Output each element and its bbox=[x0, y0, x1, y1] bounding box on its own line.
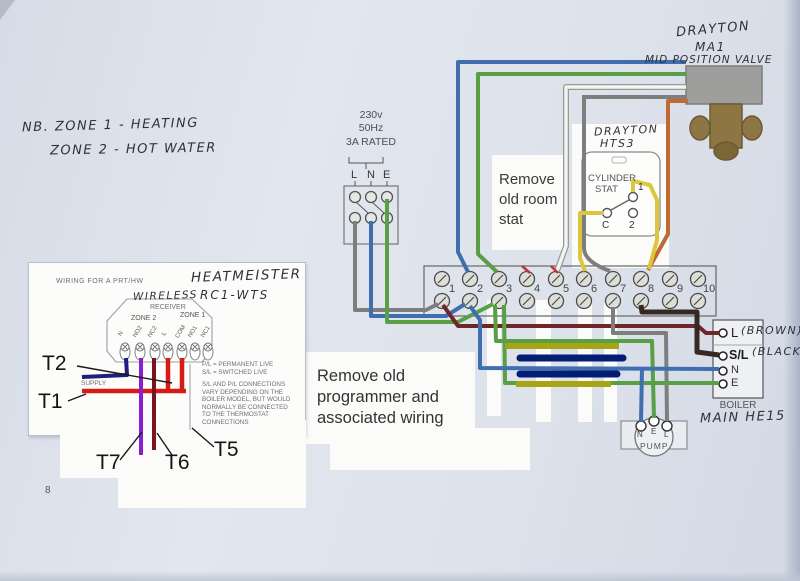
valve-port-left bbox=[690, 116, 710, 140]
boiler-terminal-l bbox=[719, 329, 727, 337]
inset-receiver-label: RECEIVER bbox=[150, 304, 186, 311]
pump-label-l: L bbox=[664, 430, 668, 439]
supply-voltage: 230v bbox=[344, 109, 398, 121]
programmer-note-line: associated wiring bbox=[317, 408, 444, 429]
supply-rating: 3A RATED bbox=[336, 136, 406, 148]
supply-terminal-n: N bbox=[367, 169, 375, 181]
pump-caption: PUMP bbox=[640, 441, 669, 451]
tag-t1: T1 bbox=[38, 390, 63, 414]
inset-zone2: ZONE 2 bbox=[131, 315, 156, 322]
boiler-label-l: L bbox=[731, 325, 738, 340]
boiler-terminal-n bbox=[719, 367, 727, 375]
leader-t7 bbox=[120, 432, 142, 460]
inset-note-line: CONNECTIONS bbox=[202, 419, 290, 427]
inset-note-line: NORMALLY BE CONNECTED bbox=[202, 404, 290, 412]
valve-type: MID POSITION VALVE bbox=[645, 54, 772, 66]
inset-legend-line: P/L = PERMANENT LIVE bbox=[202, 361, 273, 369]
inset-page-number: 8 bbox=[45, 485, 51, 496]
inset-note-line: BOILER MODEL, BUT WOULD bbox=[202, 396, 290, 404]
strip-number-1: 1 bbox=[449, 283, 455, 295]
inset-note: S/L AND P/L CONNECTIONS VARY DEPENDING O… bbox=[202, 381, 290, 427]
leader-t1 bbox=[68, 394, 86, 401]
boiler-terminal-e bbox=[719, 380, 727, 388]
inset-supply-label: SUPPLY bbox=[80, 380, 107, 387]
leader-t5 bbox=[192, 428, 214, 447]
inset-heading: WIRING FOR A PRT/HW bbox=[56, 278, 144, 285]
strip-number-9: 9 bbox=[677, 283, 683, 295]
stat-terminal-2 bbox=[629, 209, 638, 218]
mid-position-valve bbox=[686, 66, 762, 160]
inset-note-line: VARY DEPENDING ON THE bbox=[202, 389, 290, 397]
supply-screw bbox=[366, 192, 377, 203]
tag-t2: T2 bbox=[42, 352, 67, 376]
stat-label-line2: STAT bbox=[595, 184, 618, 195]
receiver-terminal-screws bbox=[121, 343, 212, 351]
supply-link-line bbox=[372, 202, 384, 213]
strip-number-6: 6 bbox=[591, 283, 597, 295]
boiler-model: MAIN HE15 bbox=[700, 409, 786, 427]
strip-number-3: 3 bbox=[506, 283, 512, 295]
terminal-strip bbox=[424, 266, 716, 316]
boiler-label-sl: S/L bbox=[729, 348, 748, 362]
valve-actuator bbox=[686, 66, 762, 104]
tag-t6: T6 bbox=[165, 451, 190, 475]
scanned-wiring-diagram-page: NB. ZONE 1 - HEATING ZONE 2 - HOT WATER … bbox=[0, 0, 800, 581]
boiler-terminal-sl bbox=[719, 352, 727, 360]
strip-number-2: 2 bbox=[477, 283, 483, 295]
tag-t5: T5 bbox=[214, 438, 239, 462]
inset-wireless: WIRELESS bbox=[133, 289, 198, 303]
stat-model: HTS3 bbox=[600, 137, 635, 150]
inset-note-line: TO THE THERMOSTAT bbox=[202, 411, 290, 419]
wire-blue-branch-to-pump-n bbox=[641, 368, 642, 422]
valve-port-right bbox=[742, 116, 762, 140]
room-stat-note-line: Remove bbox=[499, 170, 557, 190]
tag-t7: T7 bbox=[96, 451, 121, 475]
programmer-note-line: programmer and bbox=[317, 387, 444, 408]
boiler-label-e: E bbox=[731, 377, 738, 389]
stat-terminal-c bbox=[603, 209, 612, 218]
valve-port-bottom bbox=[714, 142, 738, 160]
strip-number-10: 10 bbox=[703, 283, 715, 295]
boiler-note-black: (BLACK) bbox=[752, 345, 800, 358]
inset-model: RC1-WTS bbox=[200, 288, 269, 302]
programmer-note-line: Remove old bbox=[317, 366, 444, 387]
cylinder-stat-outline bbox=[582, 152, 660, 236]
valve-model: MA1 bbox=[695, 40, 726, 54]
stat-terminal-label-c: C bbox=[602, 220, 609, 231]
room-stat-note-line: stat bbox=[499, 210, 557, 230]
supply-link-line bbox=[356, 202, 368, 213]
supply-terminal-l: L bbox=[351, 169, 357, 181]
inset-legend-line: S/L = SWITCHED LIVE bbox=[202, 369, 273, 377]
boiler-note-brown: (BROWN) bbox=[741, 324, 800, 337]
room-stat-note-line: old room bbox=[499, 190, 557, 210]
inset-note-line: S/L AND P/L CONNECTIONS bbox=[202, 381, 290, 389]
boiler-label-n: N bbox=[731, 364, 739, 376]
supply-terminal-e: E bbox=[383, 169, 390, 181]
supply-screw bbox=[350, 192, 361, 203]
room-stat-note: Remove old room stat bbox=[499, 170, 557, 230]
pump-label-n: N bbox=[637, 430, 643, 439]
programmer-note: Remove old programmer and associated wir… bbox=[317, 366, 444, 429]
stat-terminal-label-2: 2 bbox=[629, 220, 635, 231]
supply-frequency: 50Hz bbox=[344, 122, 398, 134]
cylinder-stat bbox=[582, 152, 660, 236]
inset-zone1: ZONE 1 bbox=[180, 312, 205, 319]
stat-terminal-1 bbox=[629, 193, 638, 202]
inset-legend: P/L = PERMANENT LIVE S/L = SWITCHED LIVE bbox=[202, 361, 273, 376]
strip-number-8: 8 bbox=[648, 283, 654, 295]
nb-note-line2: ZONE 2 - HOT WATER bbox=[50, 141, 217, 159]
strip-number-4: 4 bbox=[534, 283, 540, 295]
stat-terminal-label-1: 1 bbox=[638, 182, 644, 193]
strip-number-5: 5 bbox=[563, 283, 569, 295]
strip-number-7: 7 bbox=[620, 283, 626, 295]
stat-label-line1: CYLINDER bbox=[588, 173, 636, 184]
pump-label-e: E bbox=[651, 427, 656, 436]
